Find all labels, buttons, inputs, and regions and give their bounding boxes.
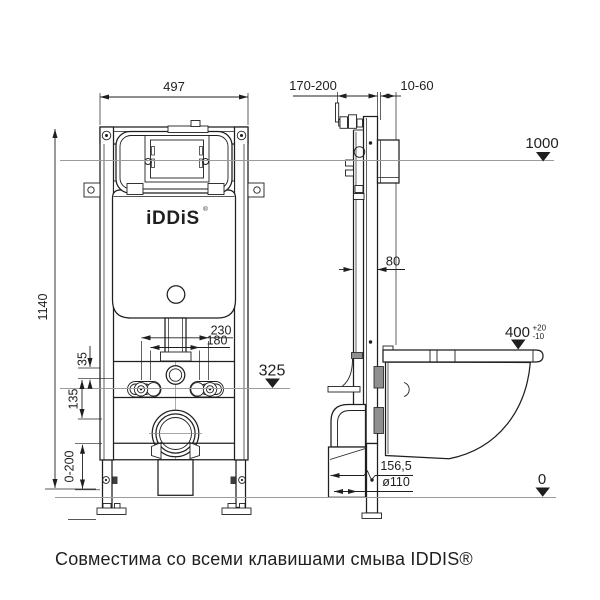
bowl-body — [386, 362, 531, 459]
dim-outlet-axis-level: 325 — [259, 363, 286, 380]
dim-wall-distance: 170-200 — [289, 78, 337, 93]
flush-housing-knob — [191, 121, 200, 127]
brand-logo: iDDiS — [146, 208, 200, 229]
mounting-block-lower — [374, 408, 384, 434]
waste-outlet — [149, 410, 202, 458]
wall-anchor-right — [248, 183, 264, 197]
dim-stud-spacing-inner: 180 — [207, 334, 228, 348]
dim-bowl-height: 400 — [505, 324, 530, 341]
side-view — [328, 92, 543, 519]
flush-access-box — [378, 140, 400, 183]
bowl-support-bar — [328, 387, 360, 393]
dim-floor-level: 0 — [538, 471, 546, 488]
flush-bend — [328, 353, 363, 393]
toilet-bowl — [383, 346, 543, 459]
dim-bracket-offset: 135 — [67, 389, 81, 410]
compatibility-caption: Совместима со всеми клавишами смыва IDDI… — [55, 549, 473, 570]
side-foot-plate — [362, 513, 382, 519]
wall-anchor-left — [84, 183, 100, 197]
installation-drawing-page: iDDiS ® — [0, 0, 600, 600]
frame-profile — [346, 117, 378, 444]
level-marker-325 — [265, 379, 280, 389]
dim-leg-adjustment: 0-200 — [63, 450, 77, 482]
waste-elbow — [329, 405, 366, 498]
dim-outlet-horizontal: 156,5 — [380, 459, 411, 473]
flush-housing-top-tab — [168, 126, 208, 133]
mounting-stud-right — [190, 382, 224, 398]
supply-pipe — [336, 103, 363, 128]
mounting-block-upper — [374, 367, 384, 389]
dim-frame-height: 1140 — [36, 294, 50, 321]
bowl-rim — [383, 350, 543, 362]
dim-waste-diameter: ø110 — [382, 475, 410, 489]
water-inlet-port — [166, 366, 185, 385]
waste-connector-box — [158, 460, 193, 496]
frame-left-rail — [100, 127, 114, 460]
registered-mark: ® — [203, 205, 208, 213]
foot-plate-right — [222, 508, 251, 515]
dim-bowl-height-minus: -10 — [533, 332, 545, 341]
level-marker-400 — [511, 340, 526, 350]
frame-right-rail — [235, 127, 249, 460]
front-view: iDDiS ® — [84, 121, 264, 515]
dim-finish-thickness: 10-60 — [400, 78, 433, 93]
flush-pipe — [161, 318, 192, 361]
mounting-stud-left — [128, 382, 162, 398]
flush-plate-housing — [116, 121, 232, 195]
dim-flush-plate-level: 1000 — [525, 135, 558, 152]
dim-frame-depth: 80 — [386, 254, 400, 269]
dim-front-width: 497 — [163, 79, 185, 94]
leg-left — [97, 460, 126, 515]
leg-right — [222, 460, 251, 515]
dim-inlet-offset: 35 — [76, 352, 90, 366]
foot-plate-left — [97, 508, 126, 515]
level-marker-0 — [536, 488, 551, 497]
technical-drawing: iDDiS ® — [0, 0, 600, 600]
